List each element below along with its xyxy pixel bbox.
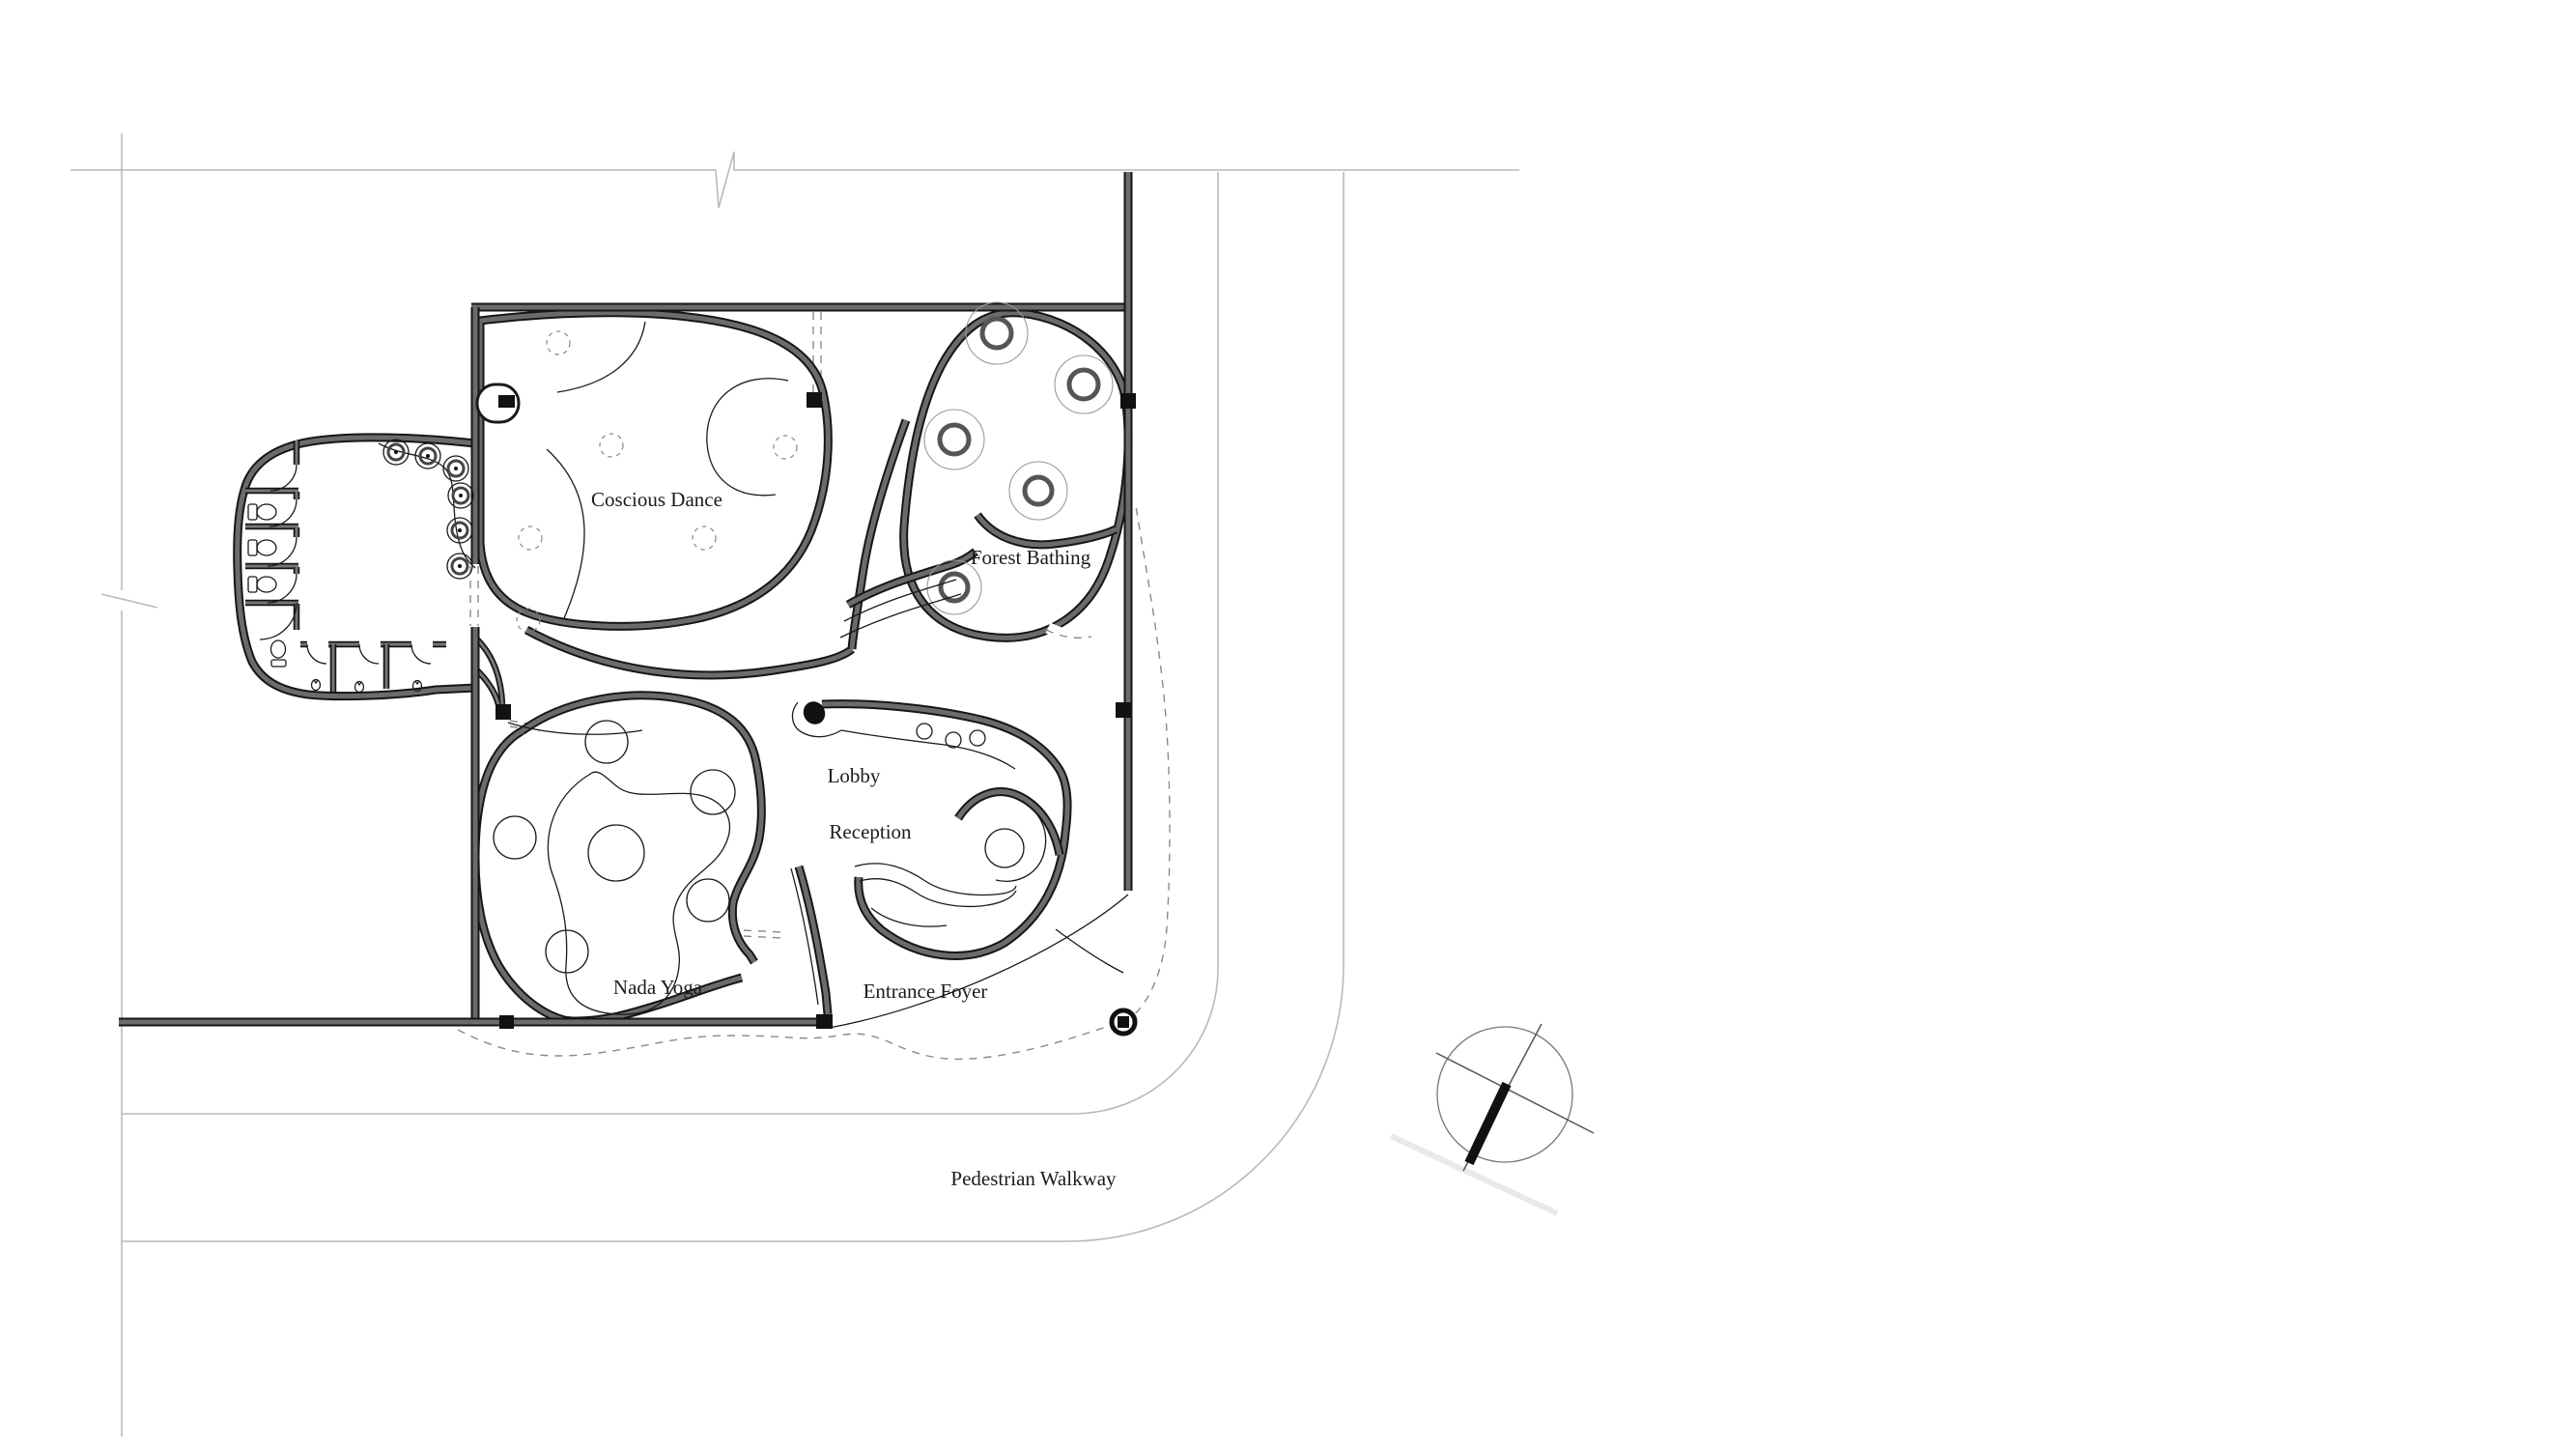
walls xyxy=(119,172,1132,1026)
sink-icon xyxy=(448,483,473,508)
room-labels: Coscious Dance Forest Bathing Lobby Rece… xyxy=(591,488,1117,1190)
room-label-lobby: Lobby xyxy=(828,764,881,787)
entrance-foyer-lines xyxy=(508,723,1128,1028)
dance-room-furniture xyxy=(517,322,797,632)
floor-plan-canvas: Coscious Dance Forest Bathing Lobby Rece… xyxy=(0,0,2576,1449)
nada-yoga-furniture xyxy=(494,721,735,1014)
sink-icon xyxy=(447,518,472,543)
urinal-icon xyxy=(312,680,321,691)
entry-point-marker xyxy=(1112,1010,1135,1034)
door-leaf xyxy=(498,395,515,408)
room-label-nada-yoga: Nada Yoga xyxy=(613,976,703,999)
toilet-icon xyxy=(271,640,287,667)
north-arrow-icon xyxy=(1391,1024,1594,1213)
toilet-icon xyxy=(248,504,276,520)
urinal-icon xyxy=(355,682,364,693)
door-pocket xyxy=(477,384,519,422)
toilet-icon xyxy=(248,577,276,592)
walkway-outer-edge xyxy=(122,172,1344,1241)
site-lines xyxy=(71,133,1519,1436)
floor-plan-page: Coscious Dance Forest Bathing Lobby Rece… xyxy=(0,0,2576,1449)
sink-icon xyxy=(383,440,409,465)
room-label-entrance-foyer: Entrance Foyer xyxy=(863,980,988,1003)
break-line-icon xyxy=(71,152,1519,208)
stool xyxy=(985,829,1024,867)
room-label-forest-bathing: Forest Bathing xyxy=(971,546,1091,569)
room-label-reception: Reception xyxy=(829,820,912,843)
tree-icon xyxy=(1055,355,1113,413)
sink-icon xyxy=(415,443,440,469)
walkway-label: Pedestrian Walkway xyxy=(950,1167,1117,1190)
tree-icon xyxy=(924,410,984,469)
sink-icon xyxy=(447,554,472,579)
toilet-icon xyxy=(248,540,276,555)
tree-icon xyxy=(1009,462,1067,520)
room-label-coscious-dance: Coscious Dance xyxy=(591,488,722,511)
sink-icon xyxy=(443,456,468,481)
